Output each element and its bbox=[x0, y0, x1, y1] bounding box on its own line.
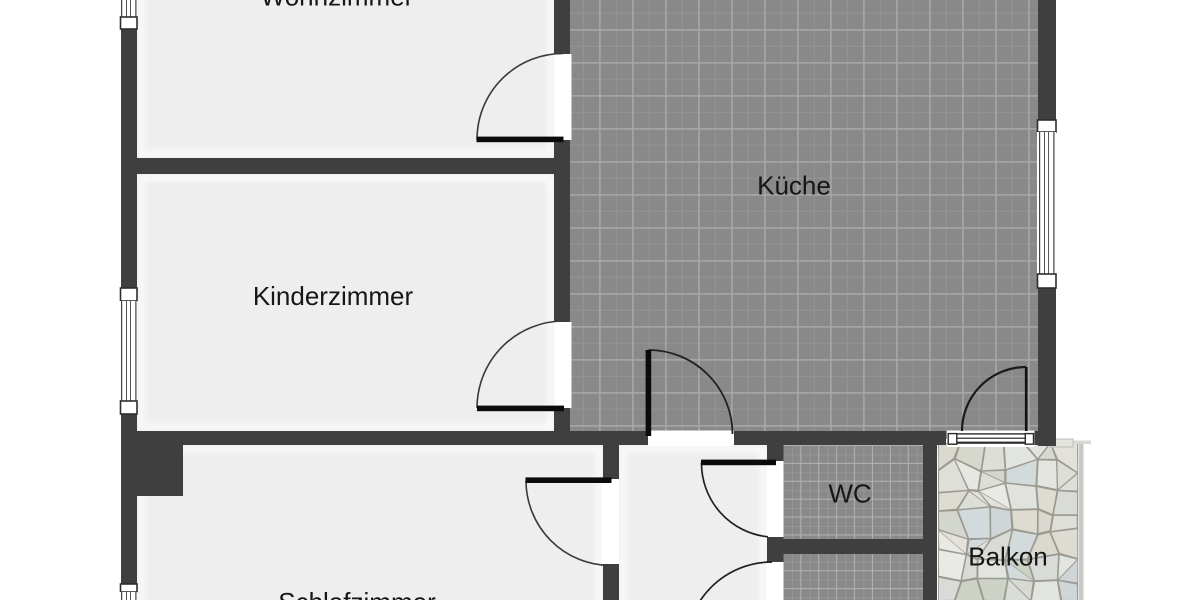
svg-text:Schlafzimmer: Schlafzimmer bbox=[278, 587, 436, 600]
svg-text:WC: WC bbox=[828, 479, 871, 509]
svg-text:Kinderzimmer: Kinderzimmer bbox=[253, 281, 414, 311]
svg-text:Wohnzimmer: Wohnzimmer bbox=[261, 0, 414, 12]
svg-text:Küche: Küche bbox=[757, 171, 831, 201]
svg-text:Balkon: Balkon bbox=[968, 542, 1048, 572]
